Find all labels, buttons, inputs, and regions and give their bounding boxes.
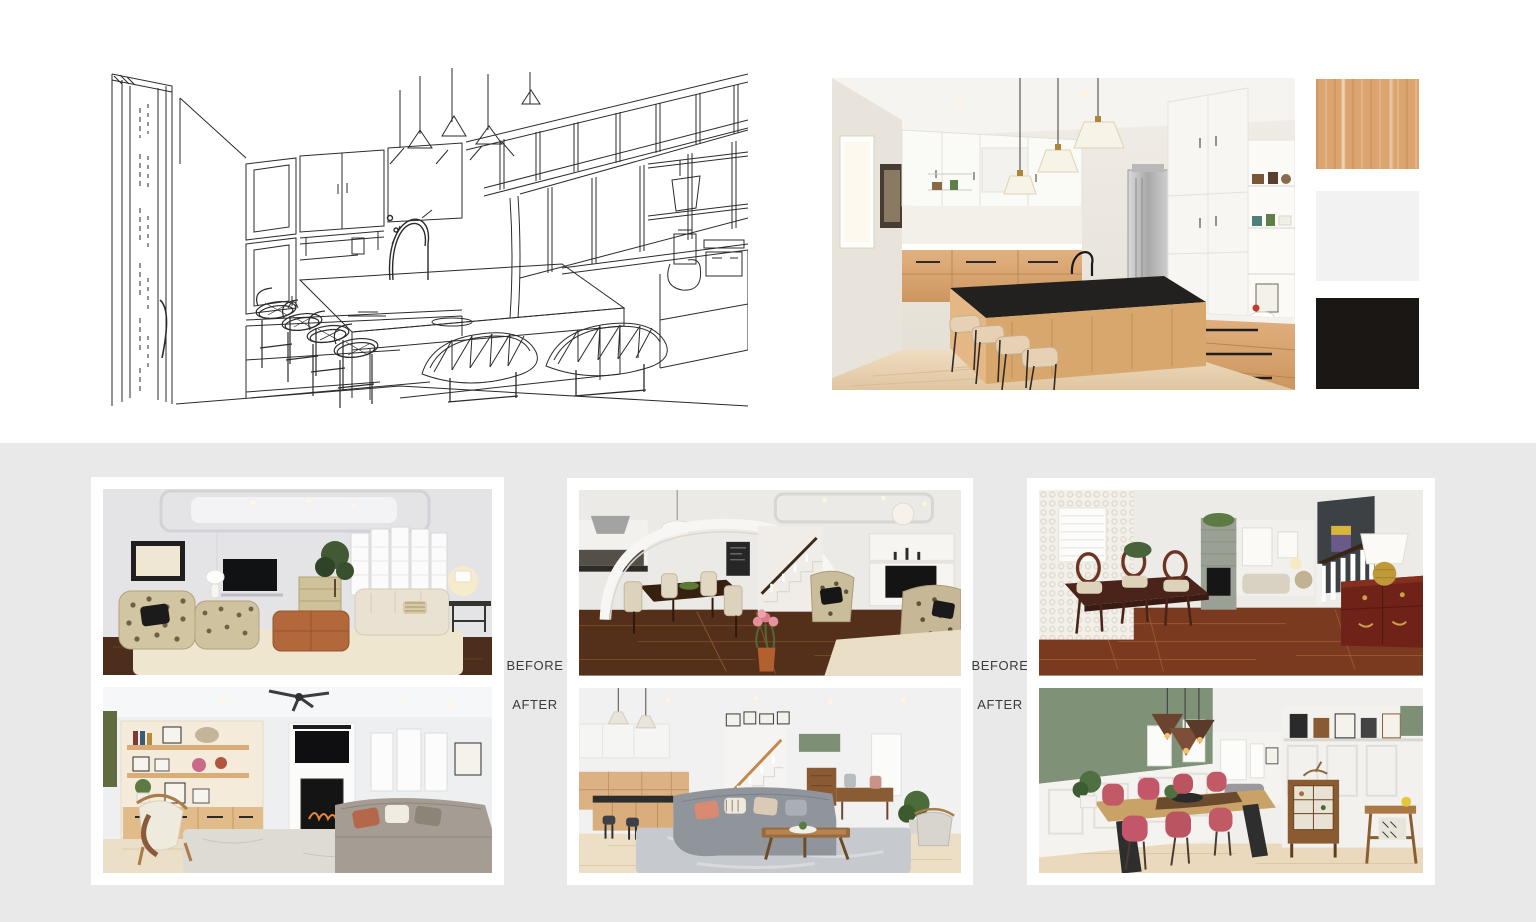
backsplash — [902, 206, 1082, 250]
sketch-fridge-handles — [510, 196, 520, 318]
bay-window — [371, 729, 447, 791]
tv — [223, 559, 277, 591]
shuttered-window — [1059, 508, 1106, 562]
wood-swatch — [1316, 79, 1419, 169]
open-shelving — [1248, 140, 1295, 320]
living-room-before-photo — [103, 489, 492, 675]
bay-window — [351, 527, 447, 595]
beige-sofa — [355, 589, 449, 635]
before-label-1: BEFORE — [500, 658, 570, 673]
sketch-wire-chairs — [422, 323, 667, 402]
design-board-page: BEFORE AFTER — [0, 0, 1536, 922]
sketch-faucet — [388, 210, 433, 280]
before-after-panel-dining-room — [1027, 478, 1435, 885]
before-after-panel-living-room — [91, 477, 504, 885]
kitchen-dining-before-photo — [579, 490, 961, 676]
sketch-pendant-lights — [390, 68, 540, 164]
after-label-2: AFTER — [970, 697, 1030, 712]
before-after-panel-kitchen-dining — [567, 478, 973, 885]
wall-art — [455, 743, 481, 775]
green-accent-wall — [103, 711, 117, 787]
sketch-window-band — [466, 74, 748, 278]
kitchen-dining-after-photo — [579, 688, 961, 874]
after-label-1: AFTER — [500, 697, 570, 712]
table-lamp — [206, 570, 224, 584]
tall-cabinets — [1168, 88, 1248, 316]
green-accent — [799, 733, 840, 751]
sketch-upper-cabinets — [246, 143, 462, 314]
grey-sectional — [673, 787, 836, 856]
kitchen-reference-photo — [832, 78, 1295, 390]
before-label-2: BEFORE — [970, 658, 1030, 673]
living-room-after-photo — [103, 687, 492, 873]
sphere-pendant — [892, 503, 914, 525]
kitchen-concept-sketch — [100, 68, 748, 408]
white-swatch — [1316, 191, 1419, 281]
floral-armchair — [811, 571, 854, 621]
chalkboard — [726, 542, 750, 576]
dining-room-after-photo — [1039, 688, 1423, 874]
wood-grain-texture — [1316, 79, 1419, 169]
far-living-area — [1236, 520, 1313, 596]
grey-sectional — [335, 798, 492, 873]
cherry-sideboard — [1341, 576, 1423, 648]
black-swatch — [1316, 298, 1419, 389]
leather-ottoman — [273, 611, 349, 651]
dining-room-before-photo — [1039, 490, 1423, 676]
sketch-door — [112, 74, 172, 406]
